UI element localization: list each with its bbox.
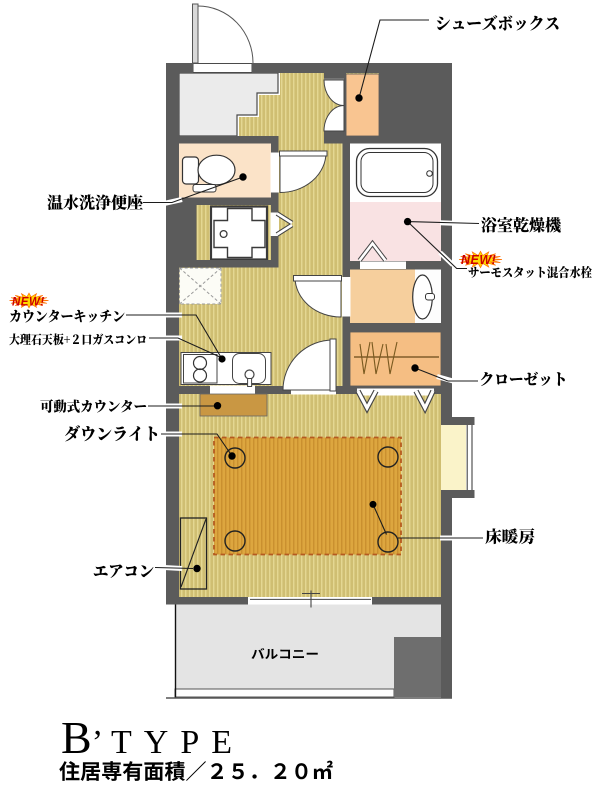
svg-text:NEW!: NEW! <box>12 297 45 309</box>
svg-text:NEW!: NEW! <box>461 253 496 267</box>
